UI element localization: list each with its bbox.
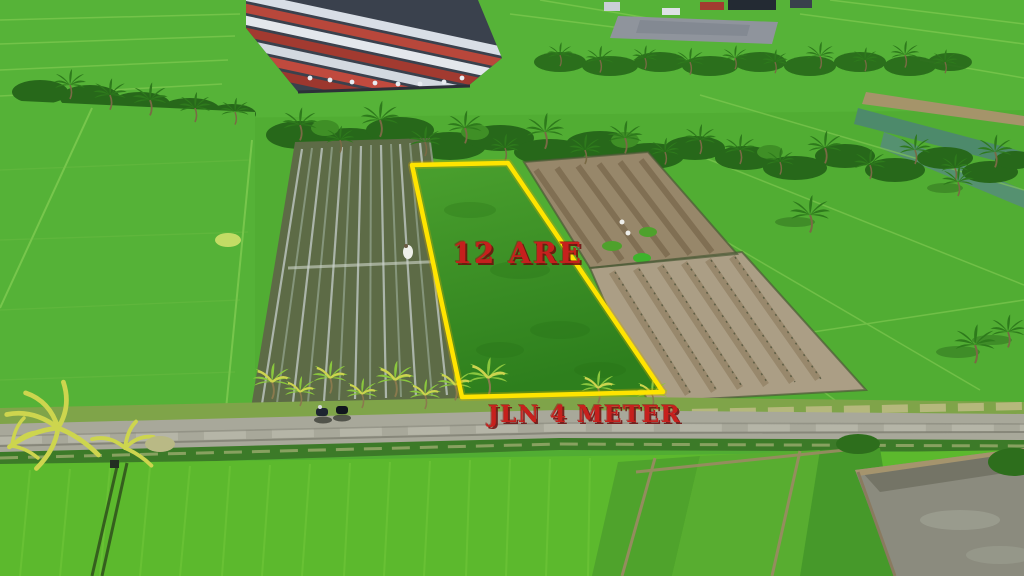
road-width-label: JLN 4 METER bbox=[488, 401, 681, 428]
motorbike bbox=[336, 406, 348, 414]
left-rice-paddy bbox=[0, 100, 255, 430]
bush bbox=[836, 434, 880, 454]
plot-area-label: 12 ARE bbox=[452, 236, 583, 270]
bottom-rice-fields bbox=[0, 448, 1024, 576]
dry-grass-bush bbox=[145, 436, 175, 452]
far-buildings bbox=[728, 0, 776, 10]
aerial-photo: 12 ARE JLN 4 METER bbox=[0, 0, 1024, 576]
photo-canvas bbox=[0, 0, 1024, 576]
motorbike bbox=[316, 408, 328, 416]
